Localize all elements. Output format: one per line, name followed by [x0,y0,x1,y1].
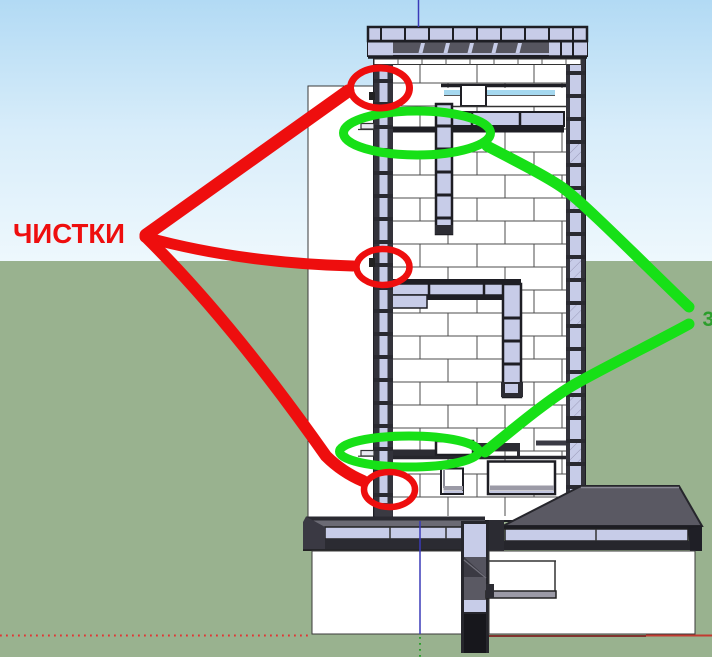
svg-text:3: 3 [703,308,712,331]
